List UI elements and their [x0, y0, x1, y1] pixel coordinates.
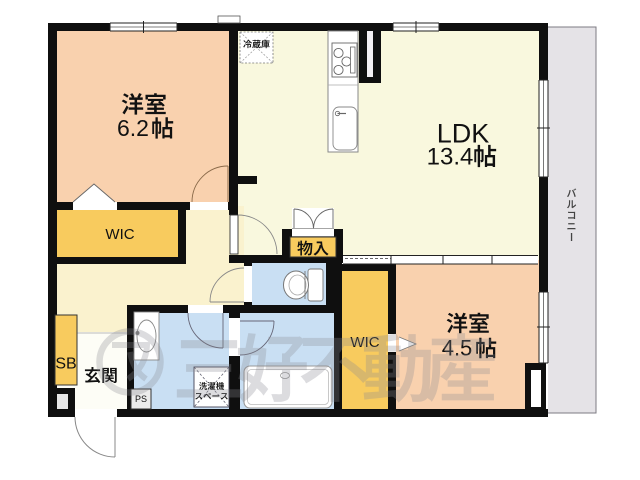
svg-text:6.2: 6.2 [117, 115, 149, 141]
svg-text:SB: SB [55, 356, 76, 373]
svg-text:WIC: WIC [105, 226, 134, 243]
svg-text:PS: PS [135, 394, 147, 404]
svg-text:13.4: 13.4 [427, 143, 474, 170]
